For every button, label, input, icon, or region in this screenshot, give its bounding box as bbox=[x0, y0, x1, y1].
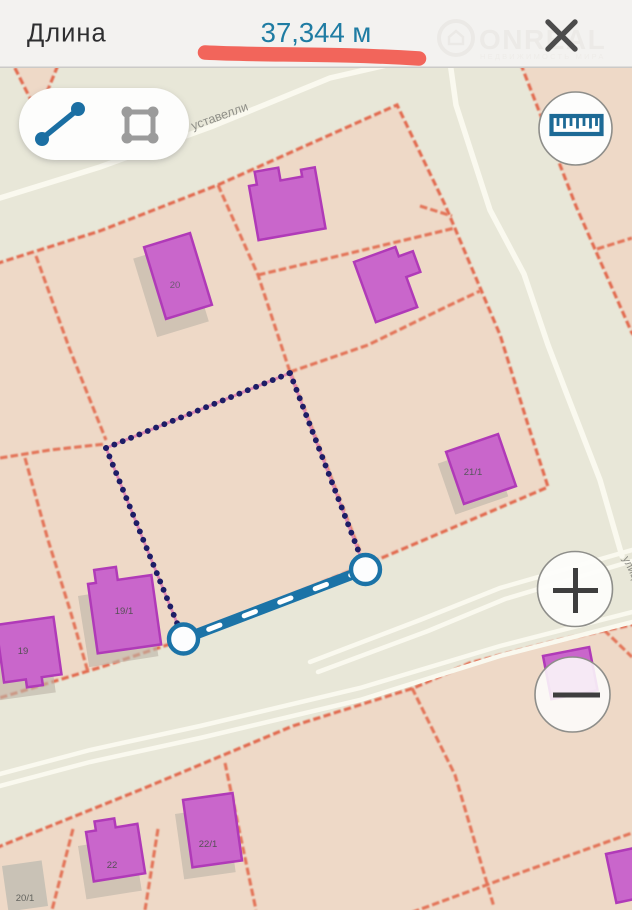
svg-text:НЕДВИЖИМОСТЬ МИРА: НЕДВИЖИМОСТЬ МИРА bbox=[480, 52, 606, 61]
svg-text:19/1: 19/1 bbox=[115, 606, 134, 617]
svg-text:37,344 м: 37,344 м bbox=[261, 17, 372, 48]
svg-text:19: 19 bbox=[18, 646, 29, 657]
svg-text:ONREAL: ONREAL bbox=[479, 24, 606, 55]
svg-text:20: 20 bbox=[170, 280, 181, 291]
svg-text:21/1: 21/1 bbox=[464, 467, 483, 478]
svg-text:Длина: Длина bbox=[27, 20, 107, 48]
svg-text:20/1: 20/1 bbox=[16, 893, 35, 904]
svg-text:22: 22 bbox=[107, 860, 118, 871]
svg-text:22/1: 22/1 bbox=[199, 839, 218, 850]
